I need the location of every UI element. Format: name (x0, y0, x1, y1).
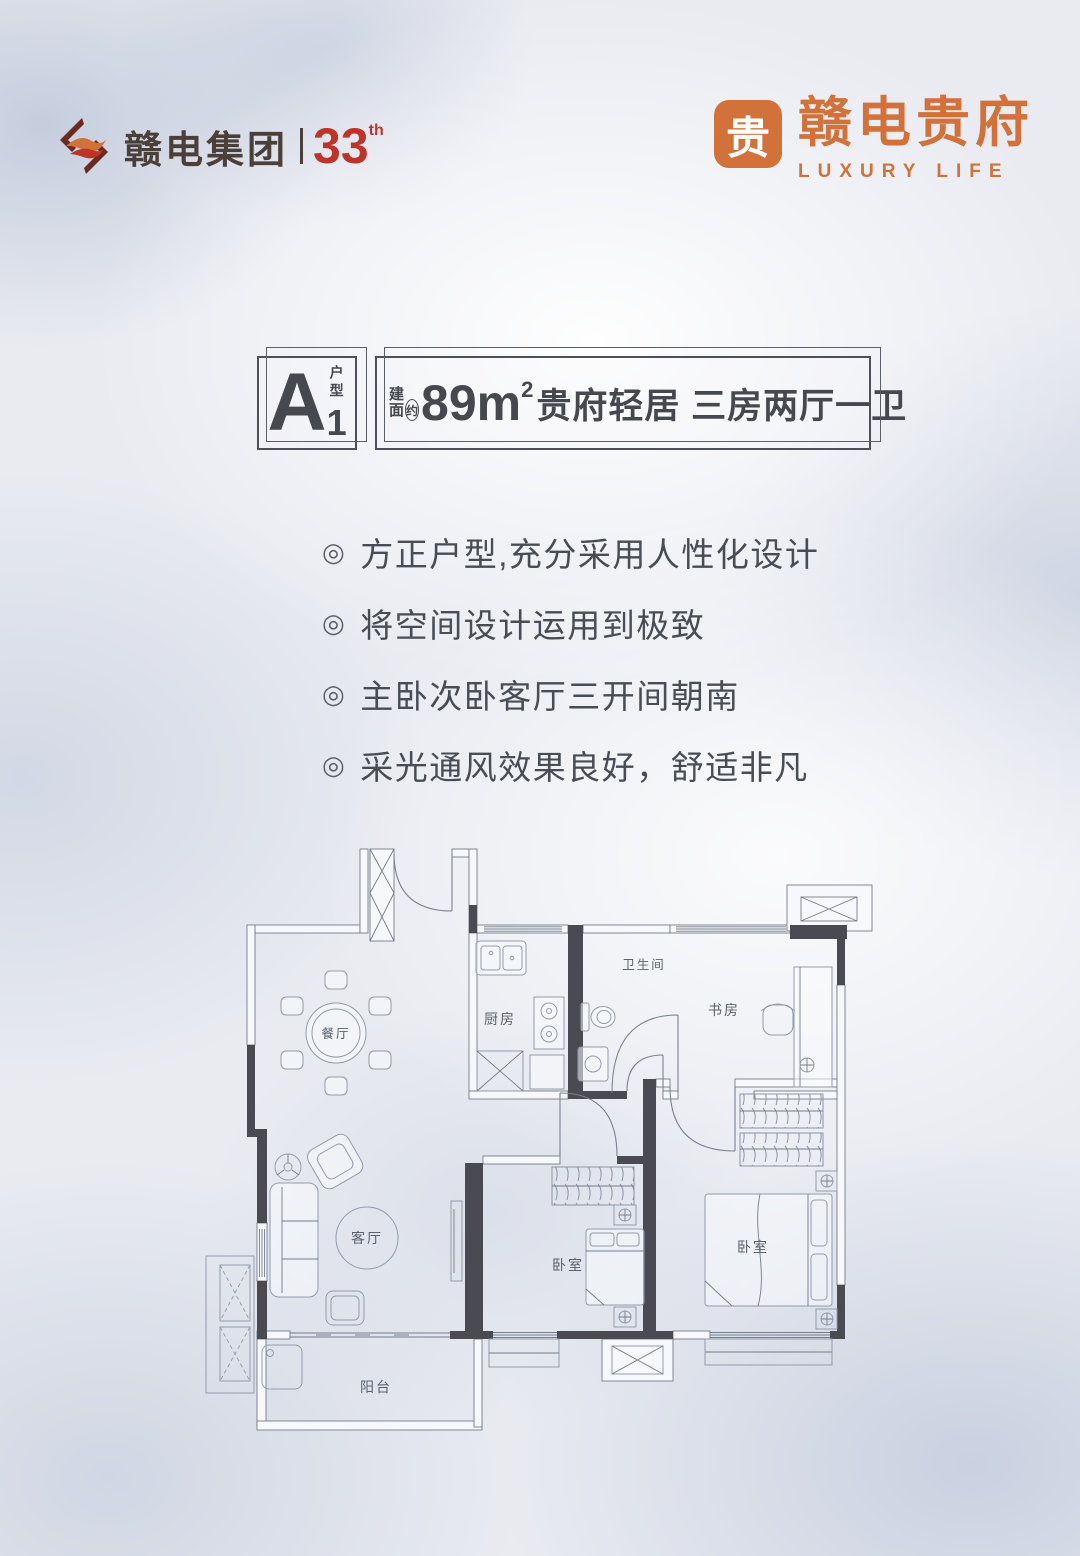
anniversary-badge: 33th (313, 121, 384, 171)
feature-list: ◎方正户型,充分采用人性化设计 ◎将空间设计运用到极致 ◎主卧次卧客厅三开间朝南… (322, 528, 819, 789)
group-logo: 赣电集团 33th (56, 116, 384, 176)
area-superscript: 2 (521, 377, 533, 403)
unit-headline-box: 建面 约 89m 2 贵府轻居 三房两厅一卫 (375, 356, 871, 450)
area-prefix-top: 建 (389, 387, 404, 403)
group-logo-flame-bracket-icon (56, 116, 112, 176)
unit-type-badge: A 户型 1 (257, 356, 357, 450)
unit-letter: A (267, 366, 326, 440)
room-label-balcony: 阳台 (360, 1379, 392, 1395)
unit-headline: 贵府轻居 三房两厅一卫 (536, 378, 907, 429)
room-label-living: 客厅 (351, 1230, 383, 1246)
feature-text: 方正户型,充分采用人性化设计 (360, 528, 819, 576)
bedroom-a-furniture (552, 1167, 644, 1327)
bullet-icon: ◎ (322, 608, 346, 639)
feature-item: ◎将空间设计运用到极致 (322, 599, 819, 647)
seal-character: 贵 (726, 102, 770, 166)
estate-logo: 贵 赣电贵府 LUXURY LIFE (714, 94, 1034, 183)
feature-item: ◎主卧次卧客厅三开间朝南 (322, 670, 819, 718)
feature-text: 采光通风效果良好，舒适非凡 (360, 741, 809, 789)
feature-text: 主卧次卧客厅三开间朝南 (360, 670, 740, 718)
room-label-bath: 卫生间 (622, 958, 666, 972)
room-label-bedroom-b: 卧室 (737, 1239, 769, 1255)
bullet-icon: ◎ (322, 537, 346, 568)
bedroom-b-furniture (705, 1094, 837, 1329)
anniversary-number: 33 (313, 118, 369, 174)
estate-name: 赣电贵府 (798, 94, 1034, 153)
study-furniture (761, 967, 832, 1087)
living-furniture (270, 1131, 462, 1325)
bullet-icon: ◎ (322, 679, 346, 710)
room-label-dining: 餐厅 (321, 1026, 350, 1041)
bullet-icon: ◎ (322, 750, 346, 781)
area-prefix-bottom: 面 (389, 403, 404, 419)
area-prefix: 建面 (389, 387, 404, 419)
unit-type-label: 户型 (327, 365, 347, 401)
feature-text: 将空间设计运用到极致 (360, 599, 705, 647)
room-label-study: 书房 (708, 1002, 740, 1018)
estate-seal-icon: 贵 (714, 100, 782, 168)
feature-item: ◎方正户型,充分采用人性化设计 (322, 528, 819, 576)
group-logo-name: 赣电集团 (124, 119, 288, 174)
logo-divider (300, 128, 303, 164)
area-approx-circle: 约 (405, 399, 419, 421)
room-label-bedroom-a: 卧室 (552, 1257, 584, 1273)
floorplan-drawing: 餐厅 厨房 卫生间 书房 客厅 卧室 卧室 阳台 (200, 841, 880, 1466)
balcony-fixtures (262, 1345, 302, 1389)
unit-index: 1 (327, 405, 347, 441)
bathroom-fixtures (578, 1003, 615, 1081)
room-label-kitchen: 厨房 (484, 1011, 516, 1027)
area-value: 89m (421, 378, 521, 428)
estate-tagline: LUXURY LIFE (798, 161, 1034, 183)
feature-item: ◎采光通风效果良好，舒适非凡 (322, 741, 819, 789)
anniversary-suffix: th (369, 122, 384, 139)
floorplan-svg: 餐厅 厨房 卫生间 书房 客厅 卧室 卧室 阳台 (200, 841, 880, 1466)
unit-badge-row: A 户型 1 建面 约 89m 2 贵府轻居 三房两厅一卫 (257, 356, 871, 450)
floorplan-poster: 赣电集团 33th 贵 赣电贵府 LUXURY LIFE A 户型 1 建面 约… (0, 0, 1080, 1556)
